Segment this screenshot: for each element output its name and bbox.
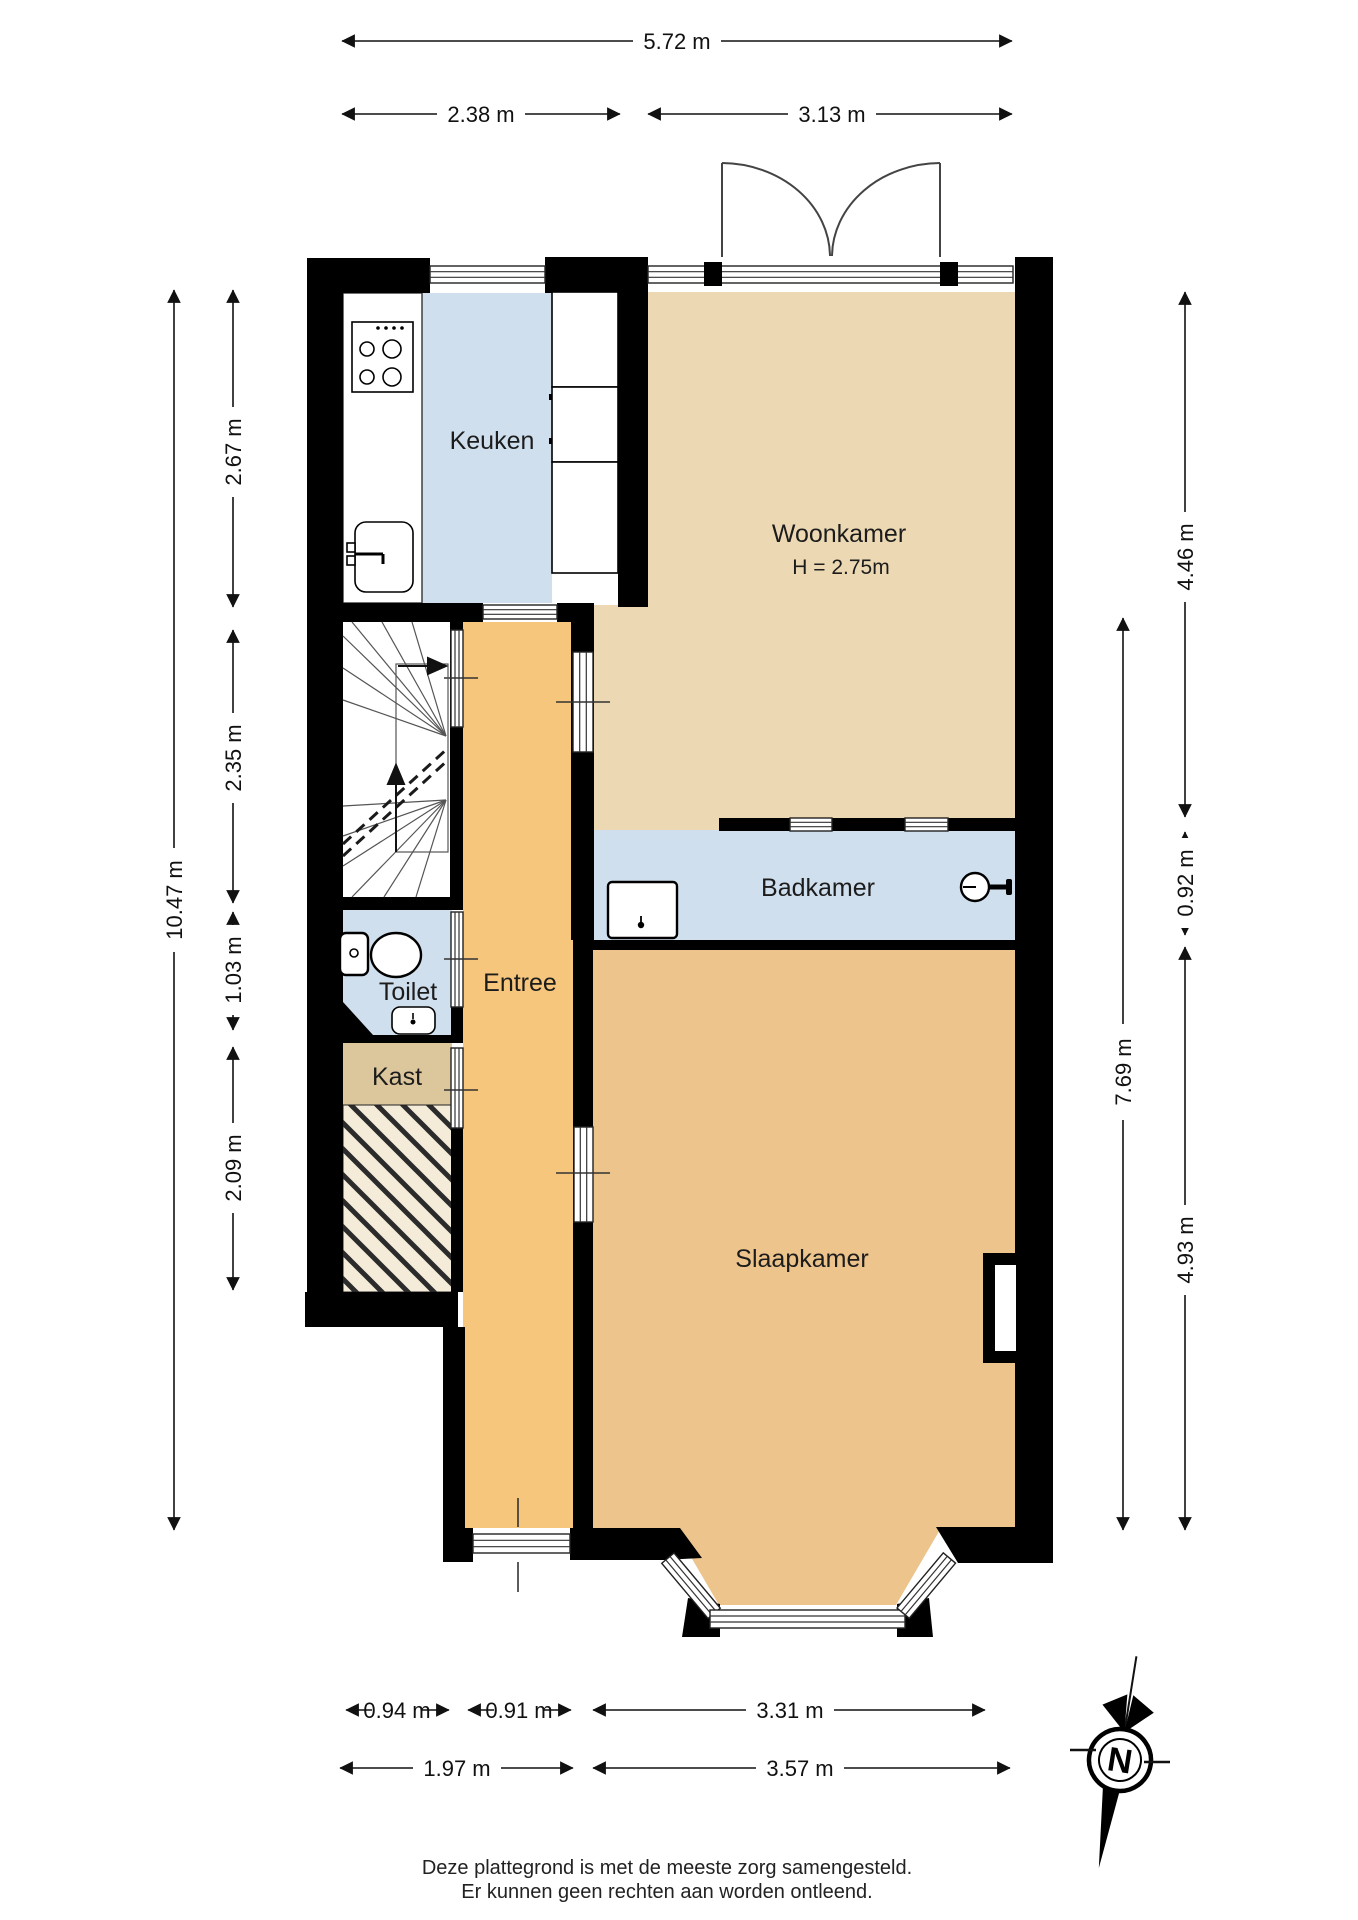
- kitchen-door: [483, 605, 557, 619]
- room-label-woonkamer: Woonkamer: [772, 520, 906, 548]
- wall-stairs-bottom: [343, 897, 463, 910]
- wall-kitchen-right: [618, 291, 648, 607]
- kitchen-sink-icon: [347, 522, 413, 592]
- floor-plan-canvas: Keuken Woonkamer H = 2.75m Badkamer Toil…: [0, 0, 1358, 1920]
- dim-left-seg-2: 2.35 m: [220, 630, 246, 903]
- wall-stairblock-bottom: [305, 1292, 458, 1327]
- north-compass-icon: N: [1070, 1651, 1170, 1873]
- footer-disclaimer-line1: Deze plattegrond is met de meeste zorg s…: [422, 1857, 912, 1879]
- room-label-keuken: Keuken: [450, 427, 535, 455]
- svg-text:7.69 m: 7.69 m: [1111, 1038, 1136, 1105]
- wall-badkamer-top-3: [948, 818, 1015, 831]
- svg-text:1.97 m: 1.97 m: [423, 1756, 490, 1781]
- dim-left-total: 10.47 m: [161, 290, 187, 1530]
- wall-entree-badkamer: [571, 830, 594, 940]
- dim-bottom-r1-1: 0.94 m: [346, 1698, 449, 1723]
- svg-text:0.94 m: 0.94 m: [363, 1698, 430, 1723]
- svg-text:4.93 m: 4.93 m: [1173, 1216, 1198, 1283]
- badkamer-window-1: [790, 818, 832, 831]
- svg-text:4.46 m: 4.46 m: [1173, 523, 1198, 590]
- wall-exterior-left: [307, 258, 343, 1327]
- dim-top-total: 5.72 m: [342, 28, 1012, 54]
- wall-kast-entree-lower: [451, 1128, 463, 1292]
- room-label-slaapkamer: Slaapkamer: [735, 1245, 868, 1273]
- svg-text:10.47 m: 10.47 m: [162, 860, 187, 940]
- kitchen-window: [430, 266, 545, 283]
- dim-bottom-r2-1: 1.97 m: [340, 1755, 573, 1781]
- dim-right-inner-total: 7.69 m: [1110, 618, 1136, 1530]
- woonkamer-facade-window: [648, 262, 1013, 286]
- svg-text:3.31 m: 3.31 m: [756, 1698, 823, 1723]
- svg-text:5.72 m: 5.72 m: [643, 29, 710, 54]
- svg-text:0.91 m: 0.91 m: [485, 1698, 552, 1723]
- dim-right-seg-3: 4.93 m: [1172, 947, 1198, 1530]
- wall-toilet-kast: [343, 1035, 463, 1043]
- toilet-icon: [340, 933, 421, 977]
- svg-text:2.09 m: 2.09 m: [221, 1134, 246, 1201]
- slaapkamer-niche-inner: [995, 1265, 1016, 1351]
- svg-text:2.67 m: 2.67 m: [221, 418, 246, 485]
- footer-disclaimer: Deze plattegrond is met de meeste zorg s…: [422, 1857, 912, 1903]
- dim-right-seg-2: 0.92 m: [1172, 832, 1198, 935]
- toilet-basin-icon: [392, 1007, 435, 1034]
- wall-front-left: [570, 1528, 670, 1560]
- wall-top-left-corner: [307, 258, 430, 293]
- wall-badkamer-top-1: [719, 818, 790, 831]
- dim-bottom-r1-3: 3.31 m: [593, 1697, 985, 1723]
- room-label-kast: Kast: [372, 1063, 422, 1091]
- room-label-badkamer: Badkamer: [761, 874, 875, 902]
- wall-slaapkamer-top: [593, 940, 1015, 950]
- under-stairs-hatch-area: [343, 1105, 452, 1292]
- wall-badkamer-top-2: [832, 818, 905, 831]
- wall-entree-slaapkamer: [573, 940, 593, 1530]
- dim-top-right: 3.13 m: [648, 101, 1012, 127]
- french-doors: [722, 163, 940, 257]
- svg-text:3.57 m: 3.57 m: [766, 1756, 833, 1781]
- dim-left-seg-4: 2.09 m: [220, 1047, 246, 1290]
- room-label-woonkamer-height: H = 2.75m: [792, 556, 889, 579]
- bathroom-unit-icon: [608, 882, 677, 938]
- dim-bottom-r2-2: 3.57 m: [593, 1755, 1010, 1781]
- dim-right-seg-1: 4.46 m: [1172, 292, 1198, 817]
- wall-top-pillar: [545, 257, 648, 293]
- svg-text:0.92 m: 0.92 m: [1173, 849, 1198, 916]
- stove-icon: [352, 322, 413, 392]
- footer-disclaimer-line2: Er kunnen geen rechten aan worden ontlee…: [461, 1881, 872, 1903]
- room-entree-floor: [463, 622, 573, 1528]
- floor-plan-page: Keuken Woonkamer H = 2.75m Badkamer Toil…: [0, 0, 1358, 1920]
- kitchen-cabinets: [552, 292, 618, 573]
- room-label-entree: Entree: [483, 969, 557, 997]
- svg-text:2.38 m: 2.38 m: [447, 102, 514, 127]
- wall-exterior-right: [1015, 257, 1053, 1563]
- dim-bottom-r1-2: 0.91 m: [468, 1698, 571, 1723]
- dim-left-seg-1: 2.67 m: [220, 290, 246, 607]
- dim-left-seg-3: 1.03 m: [220, 912, 246, 1030]
- svg-text:3.13 m: 3.13 m: [798, 102, 865, 127]
- room-slaapkamer-floor: [593, 949, 1015, 1605]
- svg-text:2.35 m: 2.35 m: [221, 724, 246, 791]
- svg-text:1.03 m: 1.03 m: [221, 936, 246, 1003]
- wall-front-right: [936, 1527, 1053, 1563]
- badkamer-window-2: [905, 818, 948, 831]
- wall-front-door-jamb: [463, 1528, 473, 1562]
- wall-toilet-entree-lower: [451, 1007, 463, 1035]
- bay-window-front: [710, 1610, 905, 1628]
- room-label-toilet: Toilet: [379, 978, 437, 1006]
- dim-top-left: 2.38 m: [342, 101, 620, 127]
- wall-entree-left-lower: [443, 1327, 465, 1562]
- wall-kitchen-bottom: [307, 603, 483, 622]
